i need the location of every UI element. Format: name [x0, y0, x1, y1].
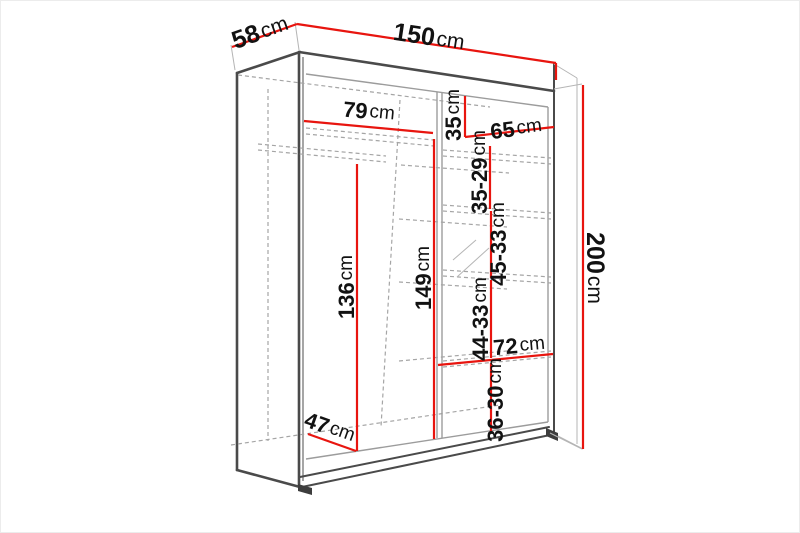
dim-line-79: [304, 121, 433, 133]
dim-label-right-gap-4: 36-30cm: [483, 358, 508, 442]
extension-line-depth-right: [295, 22, 299, 50]
left-shelf-front-top: [306, 128, 434, 140]
ceiling-front-edge: [306, 74, 548, 107]
left-shelf-front-bottom: [306, 134, 434, 146]
floor-back-edge-dashed: [231, 405, 500, 445]
partition-back-edge-dashed: [381, 100, 400, 427]
dim-label-depth: 58cm: [228, 9, 292, 55]
dim-label-width: 150cm: [391, 18, 466, 56]
extension-line-height-top: [554, 84, 582, 89]
dim-label-top-right-height: 35cm: [441, 89, 466, 141]
dim-label-left-shelf-width: 79cm: [342, 96, 396, 126]
dim-label-right-gap-2: 45-33cm: [486, 202, 511, 286]
wardrobe-dimension-diagram: 58cm 150cm 200cm 79cm 35cm 65cm 35-29cm …: [0, 0, 800, 533]
left-shelf-back-top: [258, 144, 386, 156]
side-panel-top-edge: [237, 52, 300, 73]
right-panel-top-edge: [554, 64, 577, 78]
shelf1-back-edge: [401, 165, 509, 173]
dim-label-hanging-height: 136cm: [334, 255, 359, 319]
diagram-svg: 58cm 150cm 200cm 79cm 35cm 65cm 35-29cm …: [1, 1, 799, 532]
dim-label-right-shelf-width: 65cm: [489, 112, 543, 143]
plinth-bottom-edge: [302, 435, 550, 487]
dim-label-height: 200cm: [581, 232, 609, 304]
right-panel-bottom-edge: [554, 434, 583, 449]
dim-label-right-gap-3: 44-33cm: [468, 277, 493, 361]
dim-label-right-gap-1: 35-29cm: [467, 130, 492, 214]
dimension-labels: 58cm 150cm 200cm 79cm 35cm 65cm 35-29cm …: [228, 9, 609, 447]
left-shelf-back-bottom: [258, 150, 386, 162]
dim-label-middle-height: 149cm: [411, 246, 436, 310]
side-panel-bottom-edge: [237, 470, 300, 487]
